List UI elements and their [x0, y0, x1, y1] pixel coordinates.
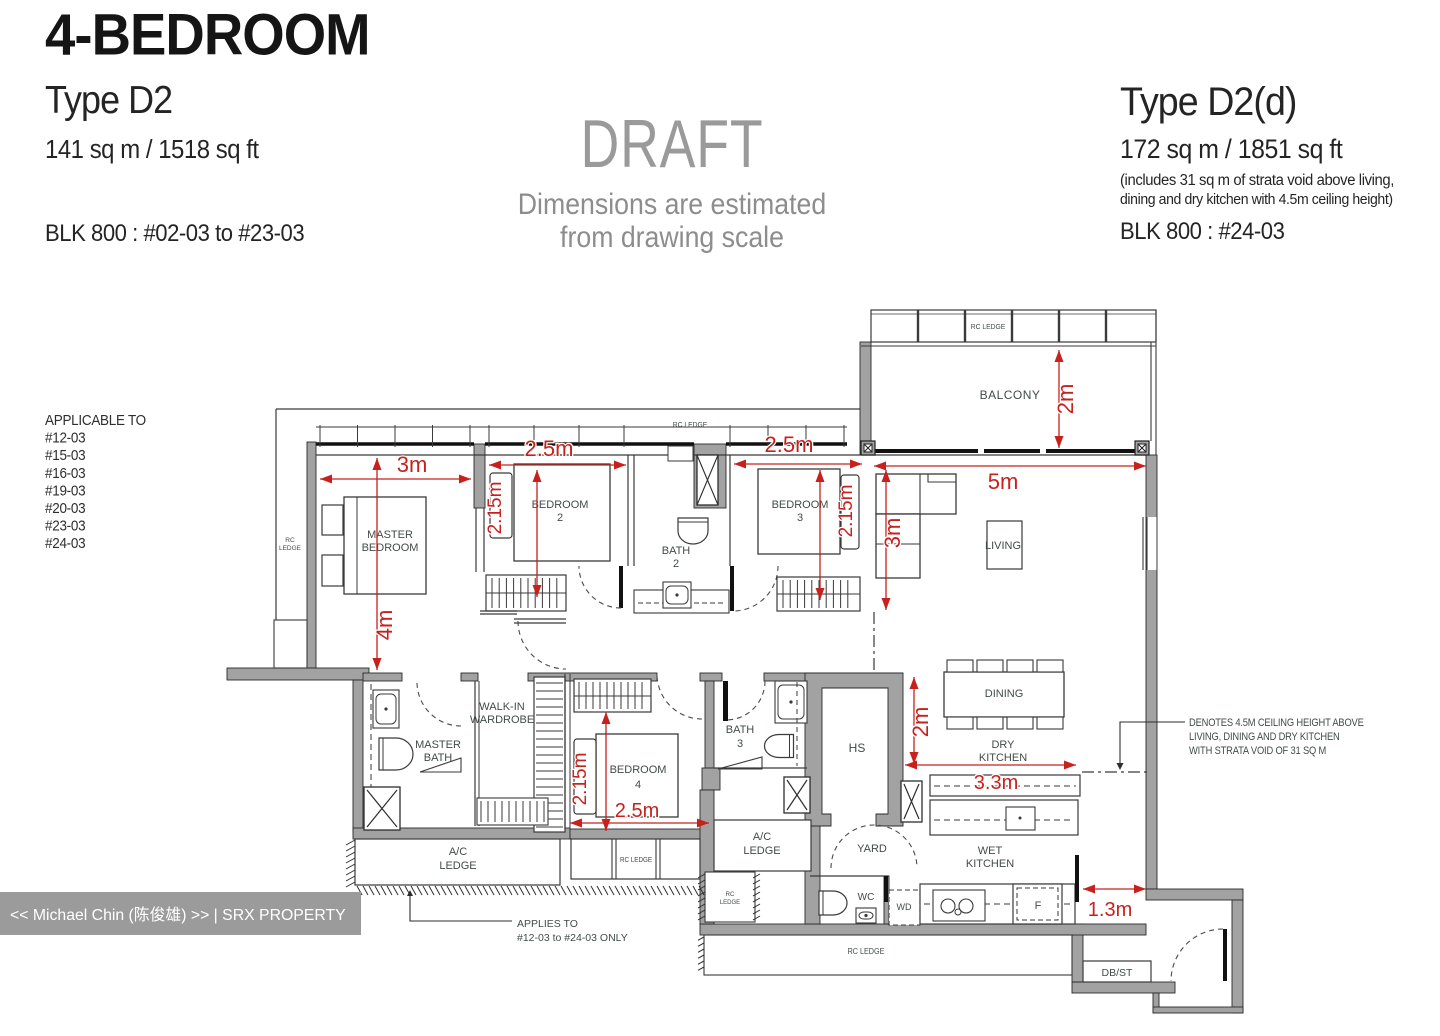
- svg-text:#15-03: #15-03: [45, 448, 86, 465]
- svg-text:DRY: DRY: [991, 739, 1015, 751]
- svg-text:BALCONY: BALCONY: [980, 388, 1041, 402]
- svg-text:WC: WC: [858, 892, 875, 903]
- svg-text:5m: 5m: [988, 469, 1019, 494]
- svg-text:LIVING, DINING AND DRY KITCHEN: LIVING, DINING AND DRY KITCHEN: [1189, 731, 1340, 743]
- svg-text:KITCHEN: KITCHEN: [966, 858, 1014, 870]
- svg-text:RC: RC: [726, 892, 735, 898]
- svg-text:#12-03: #12-03: [45, 430, 86, 447]
- svg-text:RC LEDGE: RC LEDGE: [673, 421, 708, 429]
- svg-text:KITCHEN: KITCHEN: [979, 752, 1027, 764]
- svg-text:LIVING: LIVING: [985, 540, 1021, 552]
- svg-text:A/C: A/C: [449, 846, 467, 858]
- svg-text:BLK 800 : #02-03 to #23-03: BLK 800 : #02-03 to #23-03: [45, 219, 304, 246]
- svg-text:#20-03: #20-03: [45, 500, 86, 517]
- svg-text:2.5m: 2.5m: [525, 436, 574, 461]
- svg-text:2.5m: 2.5m: [615, 800, 659, 822]
- svg-text:3.3m: 3.3m: [974, 772, 1018, 794]
- svg-text:Type D2: Type D2: [45, 78, 172, 122]
- svg-text:LEDGE: LEDGE: [279, 545, 302, 552]
- svg-text:RC LEDGE: RC LEDGE: [620, 857, 653, 864]
- svg-text:APPLIES TO: APPLIES TO: [517, 918, 578, 930]
- svg-text:LEDGE: LEDGE: [743, 845, 780, 857]
- svg-text:APPLICABLE TO: APPLICABLE TO: [45, 412, 146, 429]
- svg-text:Type D2(d): Type D2(d): [1120, 80, 1296, 124]
- svg-text:DENOTES 4.5M CEILING HEIGHT AB: DENOTES 4.5M CEILING HEIGHT ABOVE: [1189, 717, 1364, 729]
- svg-text:YARD: YARD: [857, 843, 887, 855]
- svg-text:#24-03: #24-03: [45, 536, 86, 553]
- svg-text:Dimensions are estimated: Dimensions are estimated: [518, 188, 826, 222]
- svg-text:BEDROOM: BEDROOM: [362, 542, 419, 554]
- svg-text:2.5m: 2.5m: [765, 432, 814, 457]
- svg-text:from drawing scale: from drawing scale: [560, 221, 784, 255]
- svg-text:141 sq m / 1518 sq ft: 141 sq m / 1518 sq ft: [45, 135, 259, 164]
- svg-text:2.15m: 2.15m: [485, 482, 506, 535]
- svg-text:2: 2: [673, 558, 679, 570]
- svg-text:DRAFT: DRAFT: [581, 106, 764, 181]
- svg-text:2m: 2m: [908, 707, 933, 738]
- svg-text:3: 3: [737, 738, 743, 750]
- svg-text:3m: 3m: [880, 518, 905, 549]
- svg-text:2.15m: 2.15m: [570, 753, 591, 806]
- svg-text:BATH: BATH: [726, 724, 755, 736]
- svg-text:MASTER: MASTER: [415, 739, 461, 751]
- svg-text:BEDROOM: BEDROOM: [610, 764, 667, 776]
- svg-text:2: 2: [557, 512, 563, 524]
- svg-text:BEDROOM: BEDROOM: [532, 499, 589, 511]
- svg-text:dining and dry kitchen with 4.: dining and dry kitchen with 4.5m ceiling…: [1120, 192, 1393, 208]
- svg-text:RC LEDGE: RC LEDGE: [848, 947, 885, 956]
- svg-text:DINING: DINING: [985, 688, 1024, 700]
- svg-text:4-BEDROOM: 4-BEDROOM: [45, 2, 370, 67]
- svg-text:1.3m: 1.3m: [1088, 899, 1132, 921]
- svg-text:BLK 800 : #24-03: BLK 800 : #24-03: [1120, 217, 1284, 244]
- svg-text:RC LEDGE: RC LEDGE: [971, 323, 1006, 331]
- svg-text:4m: 4m: [372, 610, 397, 641]
- svg-text:2.15m: 2.15m: [836, 485, 857, 538]
- svg-text:WITH STRATA VOID OF 31 SQ M: WITH STRATA VOID OF 31 SQ M: [1189, 745, 1326, 757]
- svg-text:4: 4: [635, 779, 641, 791]
- svg-text:BATH: BATH: [424, 752, 453, 764]
- svg-text:WET: WET: [978, 845, 1003, 857]
- svg-text:#19-03: #19-03: [45, 483, 86, 500]
- svg-text:WALK-IN: WALK-IN: [479, 701, 524, 713]
- svg-text:#23-03: #23-03: [45, 518, 86, 535]
- svg-text:BATH: BATH: [662, 545, 691, 557]
- svg-text:RC: RC: [285, 537, 295, 544]
- svg-text:LEDGE: LEDGE: [439, 860, 476, 872]
- svg-text:(includes 31 sq m of strata vo: (includes 31 sq m of strata void above l…: [1120, 172, 1394, 189]
- svg-text:WD: WD: [897, 902, 912, 912]
- svg-text:LEDGE: LEDGE: [720, 900, 740, 906]
- svg-text:MASTER: MASTER: [367, 529, 413, 541]
- svg-text:#16-03: #16-03: [45, 465, 86, 482]
- svg-text:A/C: A/C: [753, 831, 771, 843]
- svg-text:DB/ST: DB/ST: [1102, 967, 1134, 979]
- svg-text:F: F: [1035, 900, 1042, 912]
- svg-text:2m: 2m: [1053, 384, 1078, 415]
- svg-text:HS: HS: [849, 741, 866, 755]
- svg-text:3: 3: [797, 512, 803, 524]
- svg-text:172 sq m / 1851 sq ft: 172 sq m / 1851 sq ft: [1120, 135, 1343, 164]
- svg-text:WARDROBE: WARDROBE: [470, 714, 534, 726]
- svg-text:<< Michael Chin (陈俊雄) >> | SRX: << Michael Chin (陈俊雄) >> | SRX PROPERTY: [10, 906, 346, 924]
- svg-text:3m: 3m: [397, 452, 428, 477]
- svg-text:#12-03 to #24-03 ONLY: #12-03 to #24-03 ONLY: [517, 932, 628, 944]
